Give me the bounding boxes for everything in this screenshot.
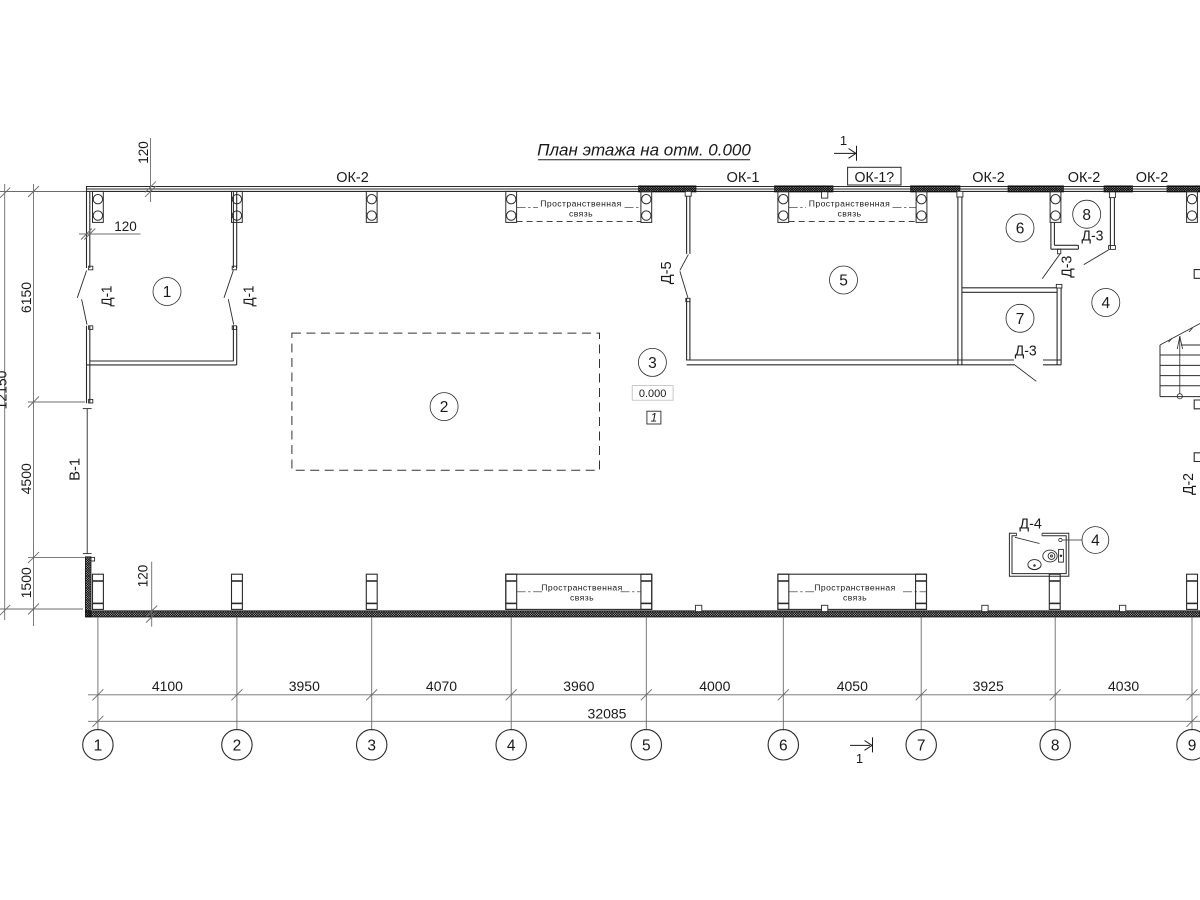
svg-text:8: 8	[1051, 738, 1060, 755]
svg-text:ОК-1?: ОК-1?	[855, 169, 895, 186]
svg-text:Пространственная: Пространственная	[814, 582, 895, 592]
svg-text:связь: связь	[570, 593, 594, 603]
svg-text:4000: 4000	[699, 678, 730, 694]
svg-text:связь: связь	[843, 593, 867, 603]
svg-text:3925: 3925	[973, 678, 1004, 694]
svg-text:4030: 4030	[1108, 678, 1139, 694]
svg-text:ОК-1: ОК-1	[727, 169, 760, 186]
svg-text:7: 7	[1016, 311, 1025, 328]
svg-text:3: 3	[367, 738, 376, 755]
svg-text:В-1: В-1	[67, 458, 84, 481]
svg-text:связь: связь	[838, 209, 862, 219]
svg-text:6: 6	[779, 738, 788, 755]
svg-text:4500: 4500	[18, 463, 34, 494]
svg-text:4: 4	[1101, 295, 1110, 312]
svg-text:120: 120	[114, 219, 137, 234]
svg-text:4050: 4050	[837, 678, 868, 694]
svg-text:Пространственная: Пространственная	[809, 198, 890, 208]
svg-text:120: 120	[136, 565, 151, 588]
svg-text:Д-5: Д-5	[658, 261, 675, 284]
svg-text:ОК-2: ОК-2	[972, 169, 1005, 186]
svg-text:ОК-2: ОК-2	[336, 169, 369, 186]
svg-text:120: 120	[136, 141, 151, 164]
svg-text:1: 1	[856, 751, 863, 766]
svg-text:4070: 4070	[426, 678, 457, 694]
svg-text:Д-3: Д-3	[1082, 228, 1104, 245]
svg-text:3: 3	[648, 355, 657, 372]
svg-text:2: 2	[233, 738, 242, 755]
svg-text:Пространственная: Пространственная	[540, 198, 621, 208]
svg-text:1500: 1500	[18, 567, 34, 598]
svg-text:ОК-2: ОК-2	[1136, 169, 1169, 186]
svg-text:Д-3: Д-3	[1015, 342, 1037, 359]
svg-text:3950: 3950	[289, 678, 320, 694]
svg-text:3960: 3960	[563, 678, 594, 694]
svg-text:2: 2	[440, 399, 449, 416]
svg-text:32085: 32085	[588, 706, 627, 722]
svg-text:6150: 6150	[18, 282, 34, 313]
svg-text:Пространственная: Пространственная	[541, 582, 622, 592]
svg-text:1: 1	[94, 738, 103, 755]
svg-text:План этажа на отм. 0.000: План этажа на отм. 0.000	[537, 141, 751, 160]
svg-text:Д-4: Д-4	[1019, 516, 1042, 533]
svg-text:Д-1: Д-1	[241, 286, 258, 307]
svg-text:ОК-2: ОК-2	[1068, 169, 1101, 186]
svg-text:4100: 4100	[152, 678, 183, 694]
svg-text:8: 8	[1082, 207, 1091, 224]
svg-text:7: 7	[917, 738, 926, 755]
svg-text:6: 6	[1016, 221, 1025, 238]
svg-text:0.000: 0.000	[639, 388, 667, 400]
svg-text:связь: связь	[569, 209, 593, 219]
svg-text:1: 1	[840, 133, 847, 148]
svg-text:Д-3: Д-3	[1059, 256, 1076, 278]
svg-text:1: 1	[651, 411, 658, 425]
svg-text:1: 1	[163, 284, 172, 301]
svg-text:4: 4	[507, 738, 516, 755]
svg-text:5: 5	[642, 738, 651, 755]
svg-text:5: 5	[839, 273, 848, 290]
svg-text:12150: 12150	[0, 370, 10, 409]
svg-text:4: 4	[1091, 533, 1100, 550]
svg-text:9: 9	[1188, 738, 1197, 755]
svg-text:Д-1: Д-1	[99, 286, 116, 307]
svg-text:Д-2: Д-2	[1180, 473, 1197, 495]
